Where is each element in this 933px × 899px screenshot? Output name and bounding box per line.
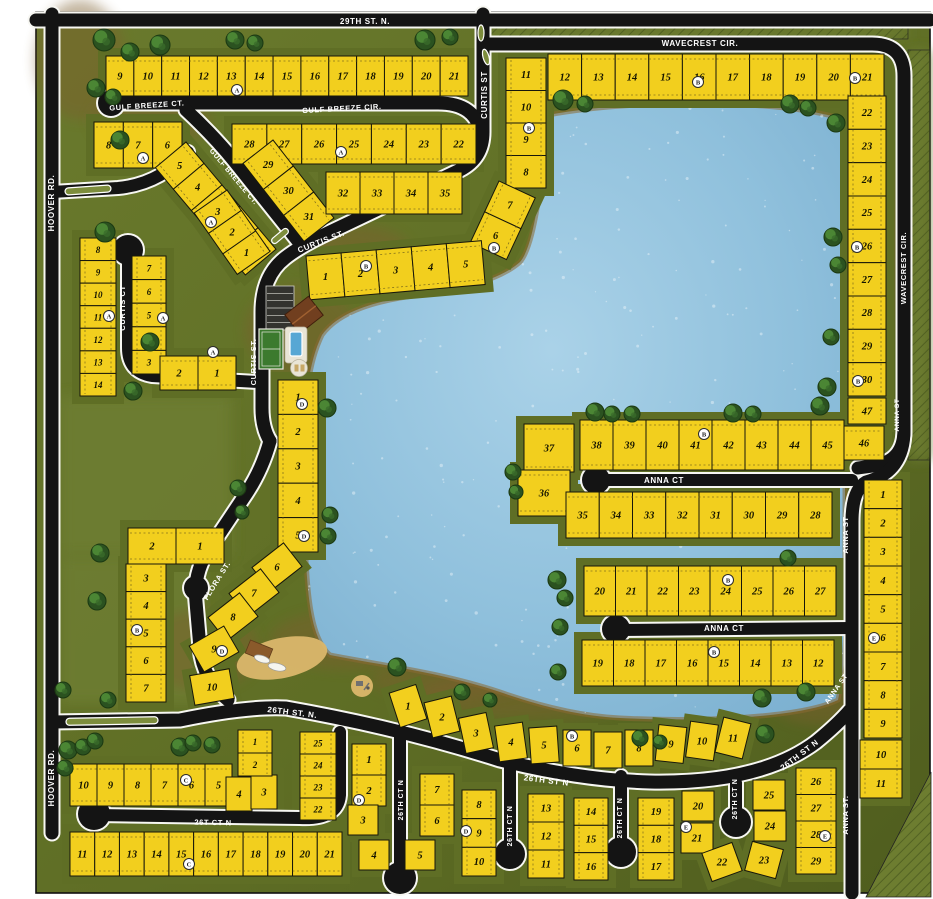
block-strip: 46 bbox=[844, 426, 884, 460]
tree-icon bbox=[150, 35, 170, 55]
phase-letter: B bbox=[135, 627, 140, 634]
block-strip: 21 bbox=[128, 528, 224, 564]
phase-letter: D bbox=[357, 797, 362, 804]
lot-number: 7 bbox=[605, 746, 611, 757]
street-label: 26T CT N bbox=[194, 818, 231, 828]
lot-number: 46 bbox=[858, 439, 870, 450]
subdivision-plat-map: 9101112131415161718192021876543213212827… bbox=[0, 0, 933, 899]
block-curtis-ct-south: 21 bbox=[160, 356, 236, 390]
lot-number: 2 bbox=[175, 369, 182, 380]
lot-number: 1 bbox=[366, 755, 371, 766]
tree-icon bbox=[632, 730, 648, 746]
lot-number: 10 bbox=[876, 750, 887, 761]
phase-marker-A: A bbox=[208, 347, 219, 358]
phase-marker-B: B bbox=[850, 73, 861, 84]
lot-number: 42 bbox=[722, 441, 734, 452]
phase-letter: B bbox=[853, 75, 858, 82]
street-label: 29TH ST. N. bbox=[340, 17, 390, 26]
lot-number: 12 bbox=[94, 335, 104, 345]
tree-icon bbox=[87, 733, 103, 749]
tree-icon bbox=[604, 406, 620, 422]
lot-number: 27 bbox=[814, 587, 826, 598]
swimming-pool bbox=[290, 332, 302, 356]
lot-number: 31 bbox=[709, 511, 721, 522]
lot-number: 2 bbox=[148, 542, 155, 553]
phase-marker-B: B bbox=[132, 625, 143, 636]
block-strip: 2021222324252627 bbox=[584, 566, 836, 616]
lot-number: 21 bbox=[861, 73, 873, 84]
lot-number: 6 bbox=[165, 141, 171, 152]
tree-icon bbox=[830, 257, 846, 273]
tree-icon bbox=[59, 741, 77, 759]
block-ct3-east: 191817 bbox=[638, 798, 674, 880]
block-strip: 12131415161718192021 bbox=[548, 54, 884, 100]
lot-number: 14 bbox=[586, 807, 597, 818]
lot-number: 18 bbox=[651, 835, 662, 846]
tree-icon bbox=[320, 528, 336, 544]
street-label: 26TH CT N bbox=[398, 780, 405, 821]
street-label: ANNA CT bbox=[704, 624, 744, 633]
lot-number: 31 bbox=[303, 212, 315, 223]
tree-icon bbox=[823, 329, 839, 345]
lot-number: 2 bbox=[252, 760, 258, 770]
phase-letter: A bbox=[235, 87, 240, 94]
lot-number: 3 bbox=[294, 462, 300, 473]
lot-number: 8 bbox=[880, 691, 886, 702]
lot-number: 5 bbox=[143, 629, 148, 640]
tree-icon bbox=[724, 404, 742, 422]
lot-number: 20 bbox=[827, 73, 839, 84]
lot-number: 5 bbox=[463, 260, 468, 271]
lot-number: 13 bbox=[782, 659, 793, 670]
lot-number: 47 bbox=[861, 407, 873, 418]
lot-number: 5 bbox=[177, 161, 182, 172]
lot-number: 2 bbox=[438, 713, 445, 724]
lot-number: 19 bbox=[593, 659, 604, 670]
lot-number: 45 bbox=[821, 441, 833, 452]
street-label: WAVECREST CIR. bbox=[899, 232, 908, 304]
block-sw-top-row2: 43 bbox=[226, 775, 277, 811]
block-mid-25col: 25242322 bbox=[300, 732, 336, 820]
lot-number: 3 bbox=[260, 788, 266, 799]
block-anna-east-col: 123456789 bbox=[864, 480, 902, 738]
lot-number: 17 bbox=[651, 862, 662, 873]
lot-number: 30 bbox=[282, 186, 294, 197]
phase-letter: E bbox=[684, 824, 688, 831]
lot-number: 6 bbox=[880, 633, 886, 644]
lot-number: 21 bbox=[691, 834, 703, 845]
lot-number: 14 bbox=[151, 850, 162, 861]
street-label: CURTIS ST. bbox=[249, 339, 258, 386]
phase-marker-E: E bbox=[681, 822, 692, 833]
block-ct2-east: 131211 bbox=[528, 794, 564, 878]
lot-number: 3 bbox=[359, 816, 365, 827]
lot-number: 11 bbox=[728, 734, 738, 745]
tree-icon bbox=[483, 693, 497, 707]
tree-icon bbox=[509, 485, 523, 499]
lot-number: 7 bbox=[135, 141, 141, 152]
lot-number: 3 bbox=[392, 266, 398, 277]
lot-number: 38 bbox=[590, 441, 602, 452]
lot-number: 21 bbox=[625, 587, 637, 598]
phase-letter: E bbox=[823, 833, 827, 840]
tree-icon bbox=[95, 222, 115, 242]
lot-number: 8 bbox=[135, 781, 141, 792]
lot-number: 19 bbox=[795, 73, 806, 84]
lot-number: 29 bbox=[262, 160, 274, 171]
lounger bbox=[295, 365, 299, 372]
lot-number: 13 bbox=[127, 850, 138, 861]
lot-number: 22 bbox=[452, 140, 464, 151]
tree-icon bbox=[797, 683, 815, 701]
lot-number: 26 bbox=[783, 587, 795, 598]
phase-letter: A bbox=[141, 155, 146, 162]
phase-letter: A bbox=[209, 219, 214, 226]
lot-number: 5 bbox=[541, 741, 546, 752]
lot-number: 18 bbox=[250, 850, 261, 861]
lot-number: 2 bbox=[879, 519, 886, 530]
lot-number: 3 bbox=[146, 358, 152, 368]
block-annact-lower-top: 2021222324252627 bbox=[584, 566, 836, 616]
lot-number: 3 bbox=[142, 573, 148, 584]
tree-icon bbox=[653, 735, 667, 749]
block-annact-upper-bot: 3534333231302928 bbox=[566, 492, 832, 538]
lot-number: 12 bbox=[198, 72, 209, 83]
tree-icon bbox=[824, 228, 842, 246]
lot-number: 36 bbox=[538, 489, 550, 500]
lot-number: 5 bbox=[880, 605, 885, 616]
lot-number: 21 bbox=[448, 72, 460, 83]
lot-number: 6 bbox=[274, 563, 280, 574]
tree-icon bbox=[811, 397, 829, 415]
lot-number: 8 bbox=[96, 245, 101, 255]
phase-letter: C bbox=[187, 861, 192, 868]
phase-marker-C: C bbox=[184, 859, 195, 870]
street-label: ANNA CT bbox=[644, 476, 684, 485]
lot-number: 25 bbox=[763, 791, 775, 802]
lot-number: 7 bbox=[143, 684, 149, 695]
lot-number: 1 bbox=[244, 248, 249, 259]
lot-number: 4 bbox=[194, 183, 200, 194]
block-strip: 1112131415161718192021 bbox=[70, 832, 342, 876]
lot-number: 10 bbox=[94, 290, 104, 300]
phase-marker-B: B bbox=[489, 243, 500, 254]
playground bbox=[351, 675, 373, 697]
lot-number: 39 bbox=[623, 441, 635, 452]
lot-number: 20 bbox=[420, 72, 432, 83]
lot-number: 7 bbox=[162, 781, 168, 792]
lot-number: 20 bbox=[594, 587, 606, 598]
lot-number: 15 bbox=[660, 73, 671, 84]
lot-number: 4 bbox=[142, 601, 148, 612]
tree-icon bbox=[388, 658, 406, 676]
street-label: ANNA ST. bbox=[841, 795, 850, 834]
lot-number: 17 bbox=[656, 659, 667, 670]
lot-number: 12 bbox=[541, 832, 552, 843]
lot-number: 7 bbox=[507, 200, 513, 211]
tree-icon bbox=[756, 725, 774, 743]
phase-letter: B bbox=[855, 244, 860, 251]
tree-icon bbox=[204, 737, 220, 753]
lot-number: 1 bbox=[405, 702, 410, 713]
lot-number: 8 bbox=[523, 167, 529, 178]
phase-marker-B: B bbox=[723, 575, 734, 586]
tree-icon bbox=[100, 692, 116, 708]
lot-number: 23 bbox=[313, 783, 324, 793]
culdesac-bulb bbox=[602, 615, 630, 643]
tree-icon bbox=[586, 403, 604, 421]
lot-number: 23 bbox=[417, 140, 429, 151]
lot-number: 9 bbox=[668, 740, 674, 751]
lot-number: 16 bbox=[586, 862, 597, 873]
tree-icon bbox=[442, 29, 458, 45]
tree-icon bbox=[91, 544, 109, 562]
lot-number: 11 bbox=[77, 850, 87, 861]
phase-marker-A: A bbox=[104, 311, 115, 322]
phase-letter: A bbox=[107, 313, 112, 320]
plat-map-page: 9101112131415161718192021876543213212827… bbox=[0, 0, 933, 899]
lot-number: 6 bbox=[147, 287, 152, 297]
lot-number: 37 bbox=[543, 444, 555, 455]
street-label: WAVECREST CIR. bbox=[662, 39, 739, 48]
street-label: CURTIS CT bbox=[118, 285, 127, 330]
tree-icon bbox=[548, 571, 566, 589]
tree-icon bbox=[800, 100, 816, 116]
block-north-row: 9101112131415161718192021 bbox=[106, 56, 468, 96]
lot-number: 22 bbox=[657, 587, 669, 598]
block-annact-upper-top: 3839404142434445 bbox=[580, 420, 844, 470]
lot-number: 5 bbox=[147, 311, 152, 321]
lot-number: 7 bbox=[880, 662, 886, 673]
lot-number: 4 bbox=[370, 851, 376, 862]
lot-number: 9 bbox=[523, 135, 529, 146]
lot-number: 1 bbox=[253, 737, 258, 747]
street-label: 26TH CT N bbox=[507, 806, 514, 847]
lot-number: 35 bbox=[576, 511, 588, 522]
lot-number: 15 bbox=[586, 835, 597, 846]
lot-number: 29 bbox=[776, 511, 788, 522]
lot-number: 26 bbox=[810, 777, 822, 788]
tree-icon bbox=[318, 399, 336, 417]
lot-number: 28 bbox=[861, 308, 873, 319]
lot-number: 25 bbox=[751, 587, 763, 598]
lot-number: 4 bbox=[427, 263, 433, 274]
tree-icon bbox=[745, 406, 761, 422]
median-island bbox=[66, 717, 158, 726]
lot-number: 5 bbox=[417, 851, 422, 862]
tree-icon bbox=[780, 550, 796, 566]
lot-number: 6 bbox=[143, 656, 149, 667]
block-strip: 32333435 bbox=[326, 172, 462, 214]
lot-number: 15 bbox=[719, 659, 730, 670]
lot-number: 26 bbox=[313, 140, 325, 151]
tree-icon bbox=[235, 505, 249, 519]
tree-icon bbox=[322, 507, 338, 523]
lot-number: 23 bbox=[758, 856, 770, 867]
lot-number: 29 bbox=[810, 856, 822, 867]
lot-number: 2 bbox=[365, 786, 372, 797]
block-strip: 21 bbox=[160, 356, 236, 390]
phase-letter: A bbox=[161, 315, 166, 322]
street-label: HOOVER RD. bbox=[47, 175, 56, 232]
lot-number: 34 bbox=[405, 189, 417, 200]
lot-number: 22 bbox=[313, 805, 324, 815]
tree-icon bbox=[553, 90, 573, 110]
lot-number: 19 bbox=[275, 850, 286, 861]
block-strip: 123456789 bbox=[864, 480, 902, 738]
lot-number: 1 bbox=[880, 490, 885, 501]
block-strip: 1098765 bbox=[70, 764, 232, 806]
lot-number: 11 bbox=[876, 779, 886, 790]
lot-number: 9 bbox=[108, 781, 114, 792]
block-annact-lot37: 37 bbox=[524, 424, 574, 472]
phase-marker-A: A bbox=[232, 85, 243, 96]
patio bbox=[291, 360, 308, 377]
block-strip: 12 bbox=[238, 730, 272, 776]
culdesac-bulb bbox=[606, 837, 636, 867]
lot-number: 11 bbox=[94, 313, 103, 323]
lot-number: 2 bbox=[294, 427, 301, 438]
phase-letter: D bbox=[220, 648, 225, 655]
play-equipment bbox=[356, 681, 363, 686]
lot-number: 5 bbox=[216, 781, 221, 792]
phase-letter: B bbox=[492, 245, 497, 252]
phase-marker-B: B bbox=[693, 77, 704, 88]
lot-number: 10 bbox=[474, 857, 485, 868]
lot-number: 8 bbox=[230, 613, 236, 624]
lot-number: 9 bbox=[96, 267, 101, 277]
lot-number: 24 bbox=[313, 761, 324, 771]
lot-number: 13 bbox=[541, 804, 552, 815]
phase-marker-B: B bbox=[699, 429, 710, 440]
block-strip: 9101112131415161718192021 bbox=[106, 56, 468, 96]
lounger bbox=[301, 365, 305, 372]
lot-number: 22 bbox=[861, 108, 873, 119]
block-sw-bot-row: 1112131415161718192021 bbox=[70, 832, 342, 876]
phase-marker-D: D bbox=[461, 826, 472, 837]
lot-number: 10 bbox=[207, 683, 218, 694]
lot-number: 7 bbox=[147, 263, 152, 273]
phase-letter: D bbox=[464, 828, 469, 835]
lot-number: 23 bbox=[861, 142, 873, 153]
phase-marker-D: D bbox=[354, 795, 365, 806]
street-label: ANNA ST bbox=[894, 399, 901, 432]
lot-number: 20 bbox=[692, 802, 704, 813]
lot-number: 25 bbox=[348, 140, 360, 151]
lot-number: 1 bbox=[214, 369, 219, 380]
phase-letter: B bbox=[527, 125, 532, 132]
tree-icon bbox=[505, 464, 521, 480]
phase-marker-A: A bbox=[138, 153, 149, 164]
lot-number: 35 bbox=[439, 189, 451, 200]
phase-marker-B: B bbox=[852, 242, 863, 253]
lot-number: 24 bbox=[764, 822, 776, 833]
lot-number: 32 bbox=[337, 189, 349, 200]
lot-number: 13 bbox=[593, 73, 604, 84]
phase-marker-D: D bbox=[217, 646, 228, 657]
block-mid-67col: 76 bbox=[420, 774, 454, 836]
lot-number: 3 bbox=[879, 547, 885, 558]
lot-number: 16 bbox=[201, 850, 212, 861]
phase-marker-E: E bbox=[820, 831, 831, 842]
block-strip: 3839404142434445 bbox=[580, 420, 844, 470]
lot-number: 24 bbox=[720, 587, 732, 598]
lot-number: 34 bbox=[610, 511, 622, 522]
phase-letter: B bbox=[856, 378, 861, 385]
lot-number: 23 bbox=[688, 587, 700, 598]
phase-marker-D: D bbox=[297, 399, 308, 410]
phase-marker-B: B bbox=[709, 647, 720, 658]
block-sw-12-col: 12 bbox=[238, 730, 272, 776]
lot-number: 20 bbox=[299, 850, 311, 861]
block-annact-lower-bot: 1918171615141312 bbox=[582, 640, 834, 686]
lot-number: 9 bbox=[476, 829, 482, 840]
tree-icon bbox=[141, 333, 159, 351]
lot-number: 1 bbox=[197, 542, 202, 553]
lot-number: 9 bbox=[117, 72, 123, 83]
lot-number: 41 bbox=[689, 441, 701, 452]
lot-number: 18 bbox=[761, 73, 772, 84]
street-label: ANNA ST bbox=[841, 516, 850, 553]
block-strip: 131211 bbox=[528, 794, 564, 878]
lot-number: 33 bbox=[643, 511, 655, 522]
tree-icon bbox=[624, 406, 640, 422]
tree-icon bbox=[550, 664, 566, 680]
tree-icon bbox=[88, 592, 106, 610]
block-flora-west-top: 21 bbox=[128, 528, 224, 564]
tree-icon bbox=[124, 382, 142, 400]
block-lot-47: 47 bbox=[848, 398, 886, 424]
phase-marker-B: B bbox=[524, 123, 535, 134]
tree-icon bbox=[87, 79, 105, 97]
tree-icon bbox=[557, 590, 573, 606]
lot-number: 28 bbox=[243, 140, 255, 151]
phase-marker-A: A bbox=[206, 217, 217, 228]
phase-letter: A bbox=[211, 349, 216, 356]
lot-number: 10 bbox=[78, 781, 89, 792]
lot-number: 44 bbox=[788, 441, 800, 452]
lot-number: 4 bbox=[507, 738, 513, 749]
tree-icon bbox=[121, 43, 139, 61]
lot-number: 11 bbox=[521, 70, 531, 81]
phase-letter: B bbox=[696, 79, 701, 86]
street-label: 26TH CT N bbox=[732, 779, 739, 820]
phase-marker-B: B bbox=[853, 376, 864, 387]
lot-number: 7 bbox=[434, 785, 440, 796]
lot-number: 27 bbox=[810, 803, 822, 814]
lot-number: 40 bbox=[656, 441, 668, 452]
lot-number: 6 bbox=[434, 816, 440, 827]
lot-number: 2 bbox=[229, 228, 236, 239]
lot-number: 11 bbox=[171, 72, 181, 83]
lot-number: 7 bbox=[251, 589, 257, 600]
tree-icon bbox=[818, 378, 836, 396]
lot-number: 13 bbox=[94, 358, 104, 368]
block-strip: 76 bbox=[420, 774, 454, 836]
block-anna-east-col2: 1011 bbox=[860, 740, 902, 798]
phase-marker-C: C bbox=[181, 775, 192, 786]
tree-icon bbox=[55, 682, 71, 698]
phase-letter: B bbox=[702, 431, 707, 438]
tree-icon bbox=[781, 95, 799, 113]
block-sw-top-row: 1098765 bbox=[70, 764, 232, 806]
lot-number: 4 bbox=[235, 790, 241, 801]
lot-number: 25 bbox=[313, 739, 324, 749]
block-strip: 3534333231302928 bbox=[566, 492, 832, 538]
tree-icon bbox=[111, 131, 129, 149]
lot-number: 4 bbox=[294, 496, 300, 507]
lot-number: 14 bbox=[750, 659, 761, 670]
